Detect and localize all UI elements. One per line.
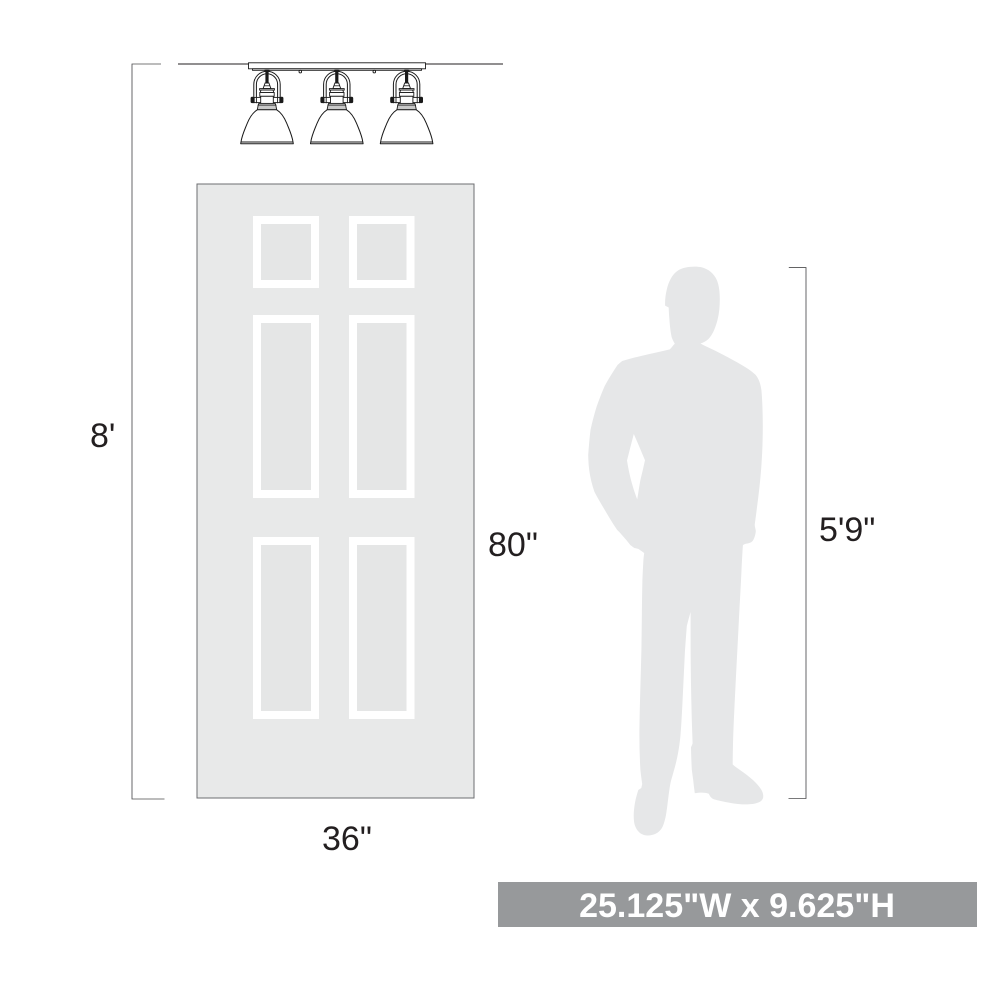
svg-text:8': 8'	[90, 417, 115, 455]
svg-text:36": 36"	[322, 820, 372, 858]
svg-text:80": 80"	[488, 526, 538, 564]
svg-text:5'9": 5'9"	[819, 511, 875, 549]
svg-text:25.125"W x 9.625"H: 25.125"W x 9.625"H	[579, 887, 895, 925]
